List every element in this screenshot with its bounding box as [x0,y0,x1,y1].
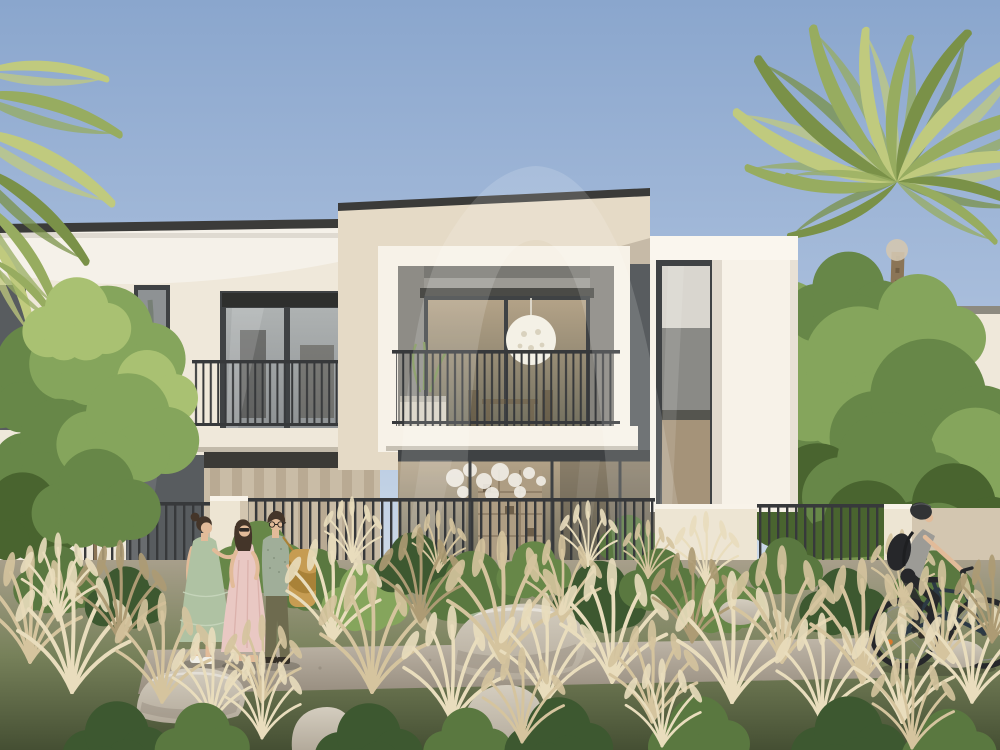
render-viewport [0,0,1000,750]
sage-shirt [262,535,290,596]
sunglasses [239,528,250,532]
townhouse-right [650,236,798,512]
face [270,519,282,531]
face [201,522,212,533]
architectural-rendering [0,0,1000,750]
roller-shade-box [222,293,352,307]
